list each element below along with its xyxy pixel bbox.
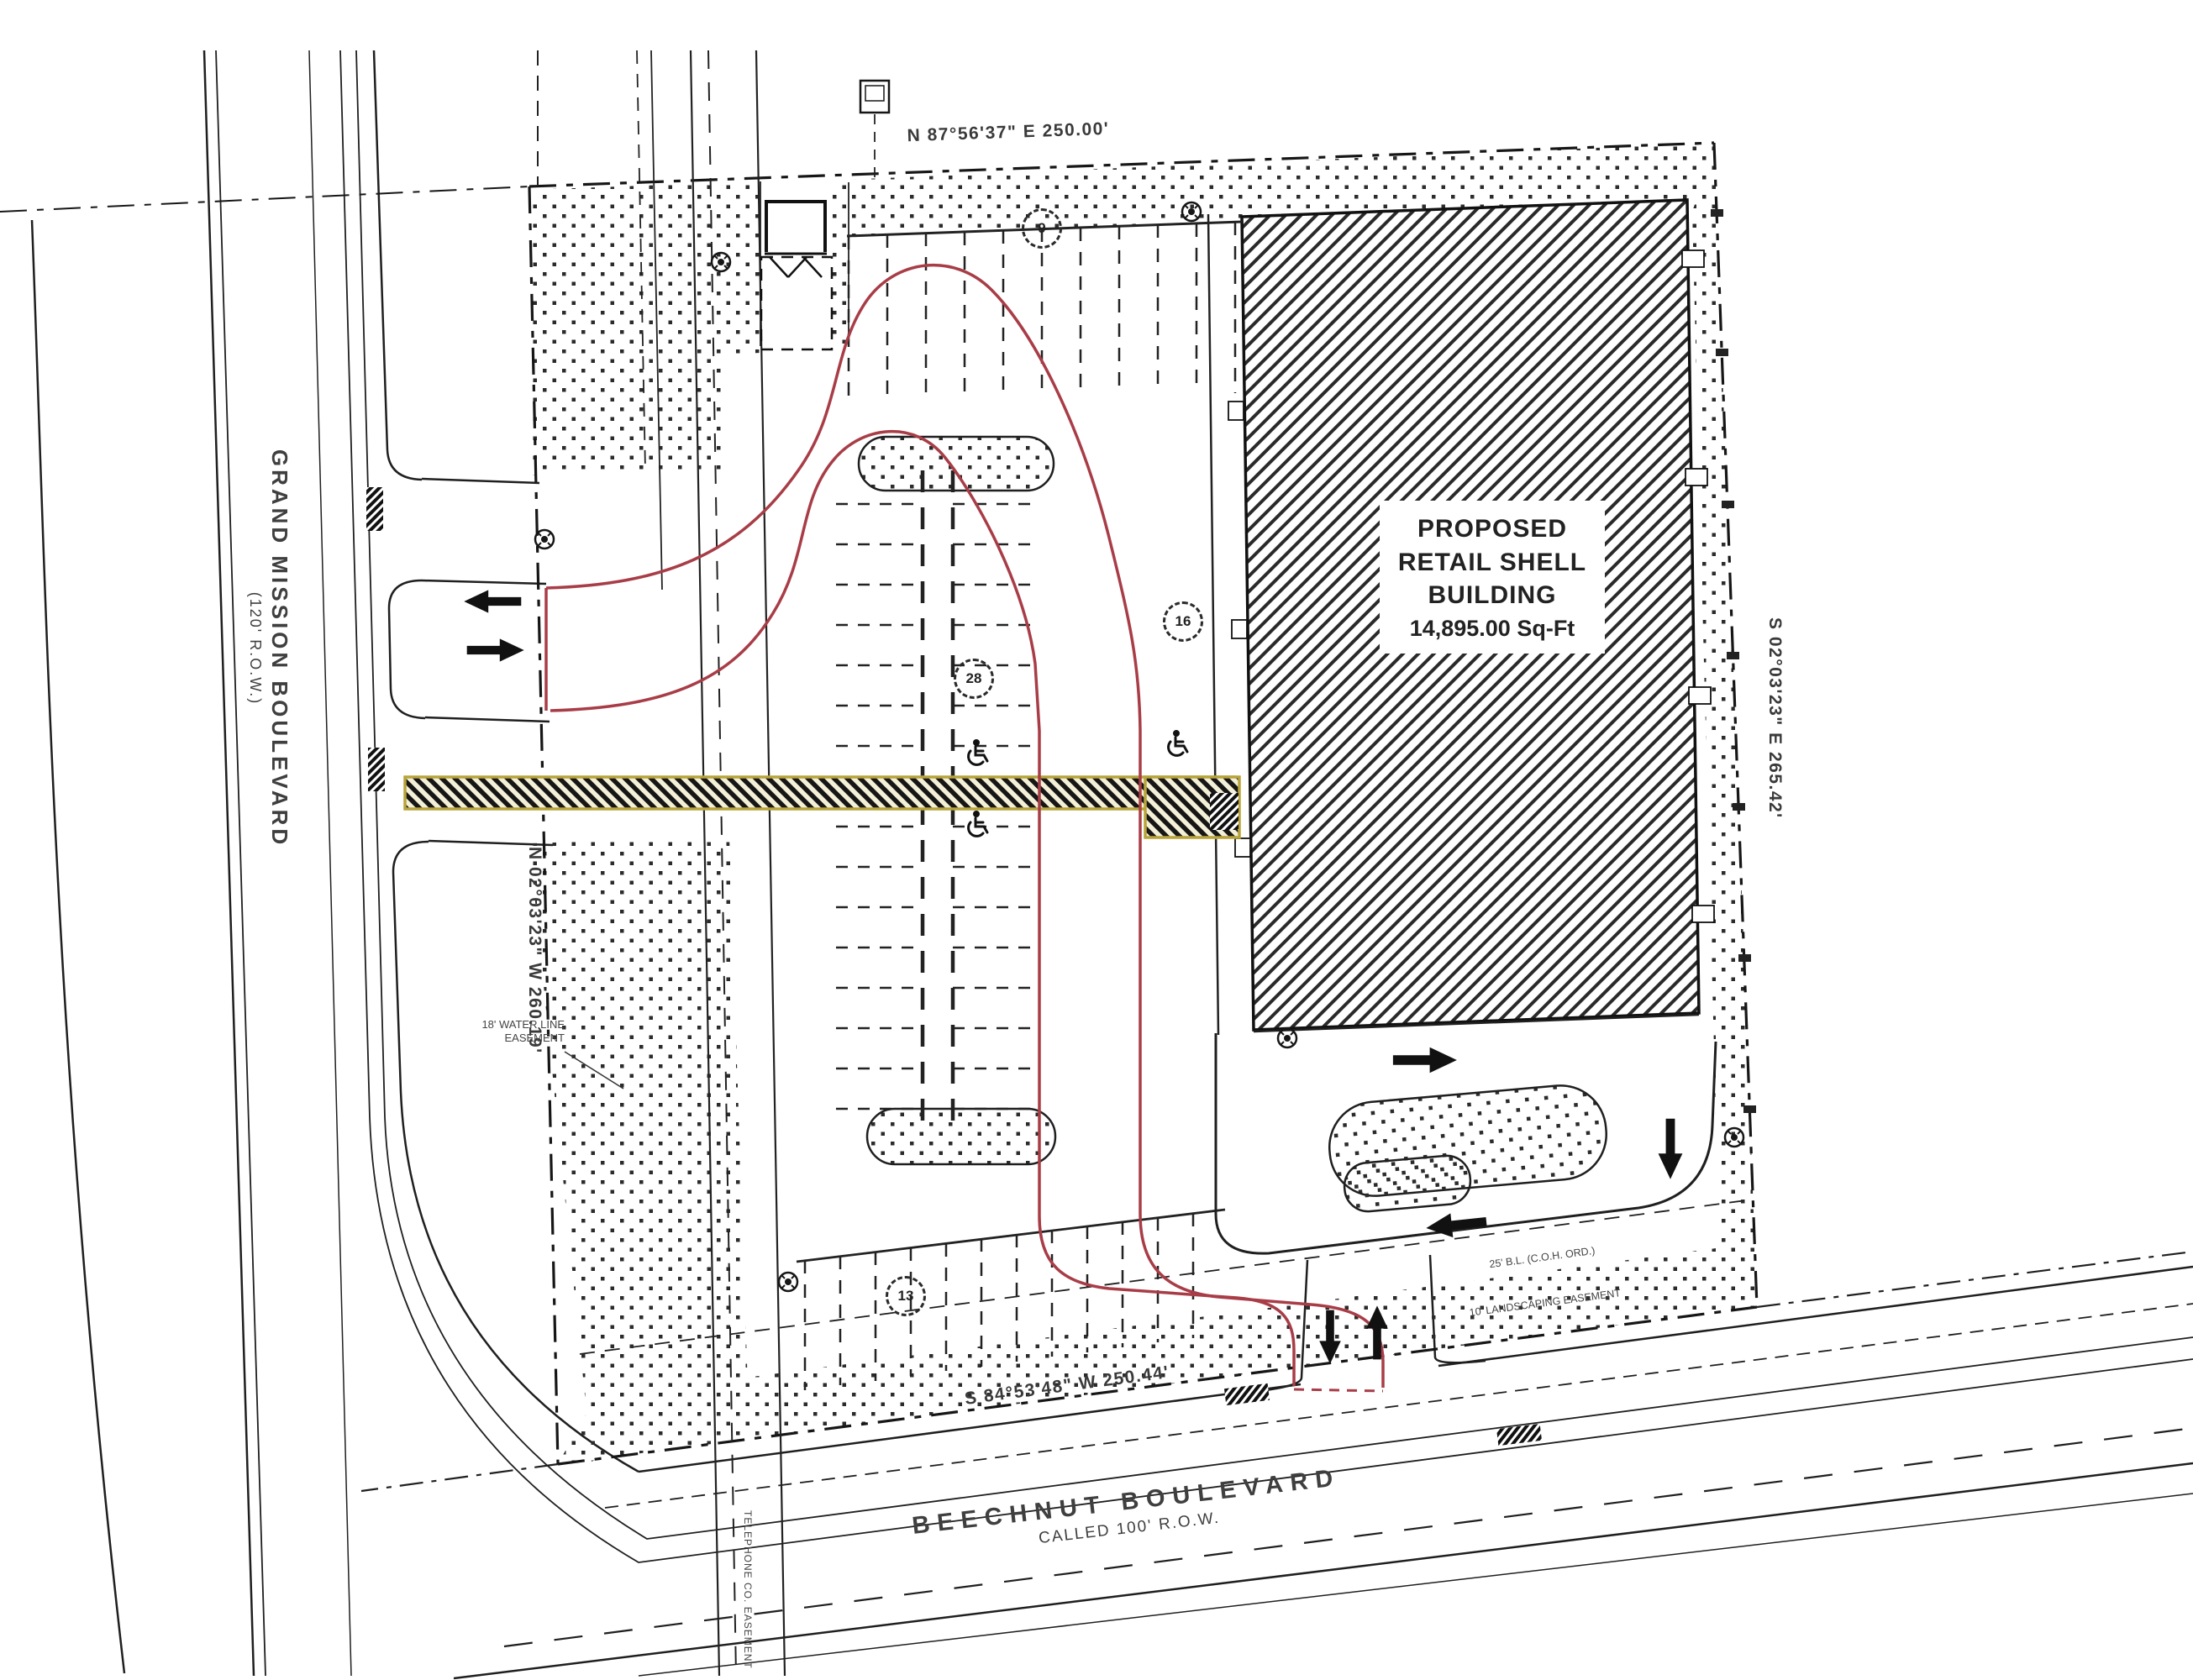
site-plan: N 87°56'37" E 250.00' S 02°03'23" E 265.… <box>0 0 2193 1680</box>
utility-crossing-bar <box>405 777 1239 837</box>
grand-mission-name: GRAND MISSION BOULEVARD <box>266 380 292 917</box>
parking-count-center: 28 <box>954 659 994 699</box>
grand-mission-row: (120' R.O.W.) <box>246 380 264 917</box>
street-label-grand-mission: GRAND MISSION BOULEVARD (120' R.O.W.) <box>246 380 292 917</box>
water-easement-note: 18' WATER LINE EASEMENT <box>430 1018 565 1046</box>
building-label: PROPOSED RETAIL SHELL BUILDING 14,895.00… <box>1380 501 1605 654</box>
building-label-line2: RETAIL SHELL <box>1380 546 1605 580</box>
site-plan-drawing <box>0 0 2193 1680</box>
dumpster-enclosure <box>761 202 832 349</box>
parking-count-east: 16 <box>1163 601 1203 642</box>
grand-mission-road <box>32 50 2193 1676</box>
parking-count-north: 9 <box>1022 208 1062 249</box>
building-label-line1: PROPOSED <box>1380 512 1605 546</box>
sign-box <box>860 81 889 113</box>
building-label-line3: BUILDING <box>1380 579 1605 612</box>
parking-count-south: 13 <box>886 1276 926 1316</box>
building-label-area: 14,895.00 Sq-Ft <box>1380 614 1605 644</box>
telephone-easement-note: TELEPHONE CO. EASEMENT <box>742 1510 754 1669</box>
east-boundary-dimension: S 02°03'23" E 265.42' <box>1764 617 1785 819</box>
